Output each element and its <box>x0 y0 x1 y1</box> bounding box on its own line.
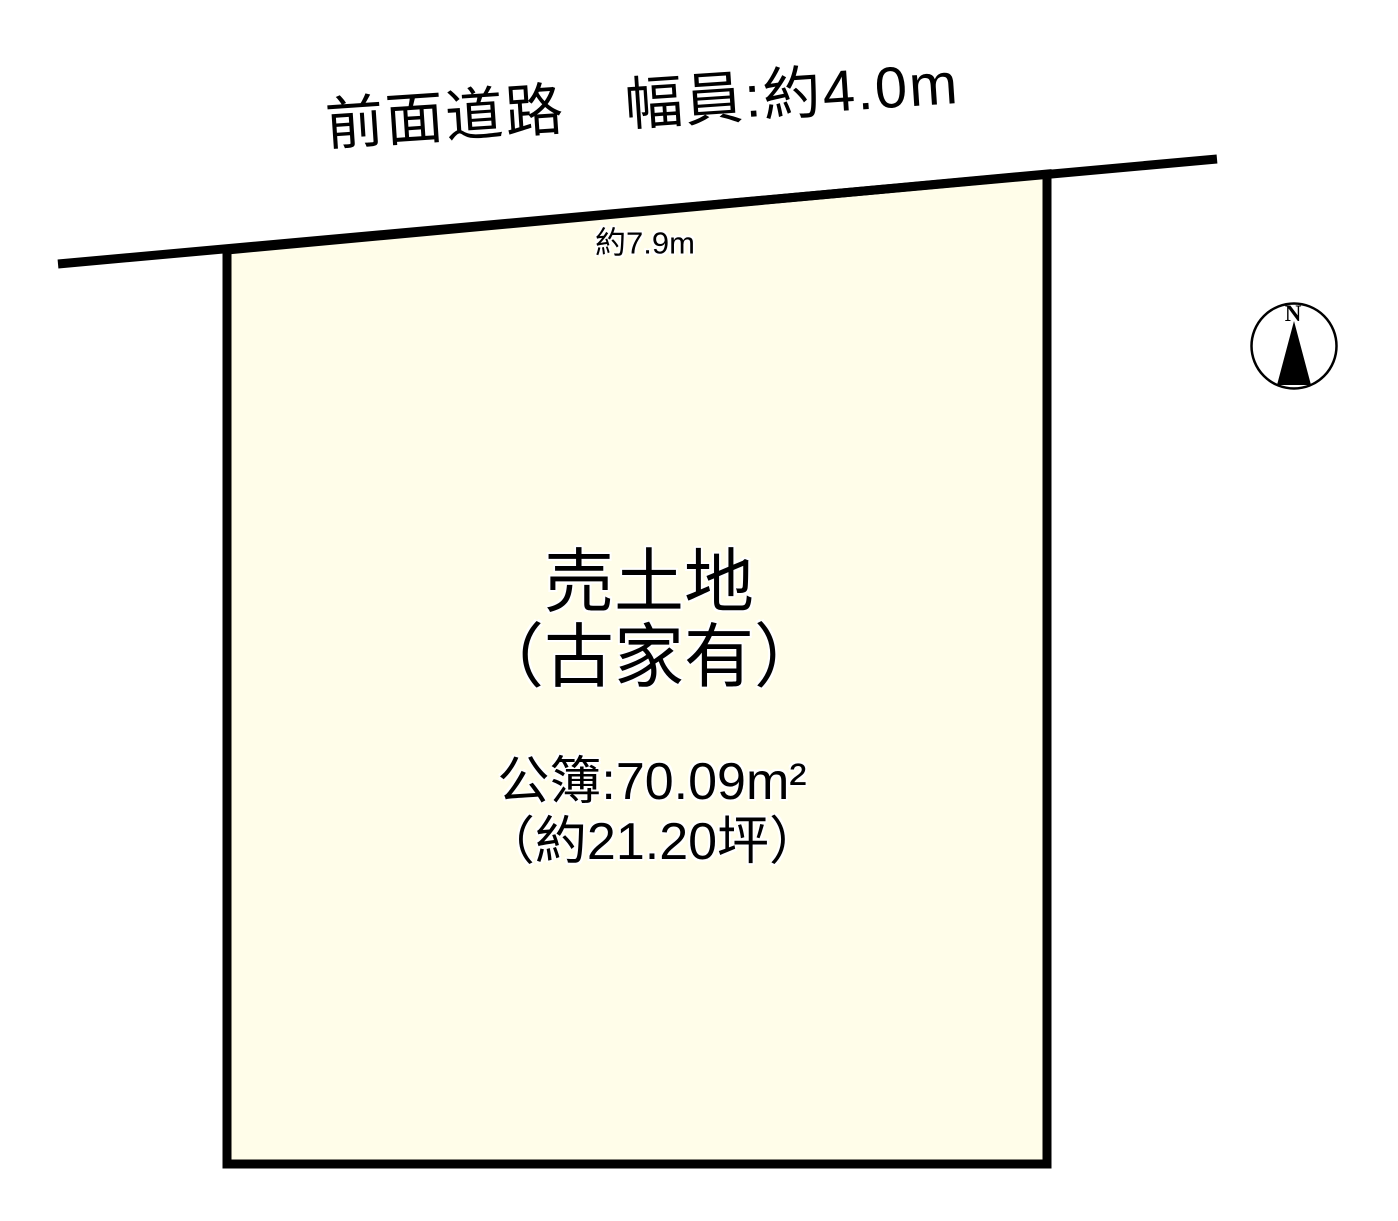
site-plan-canvas: 前面道路 幅員:約4.0m 約7.9m 売土地 （古家有） 公簿:70.09m²… <box>0 0 1398 1221</box>
parcel-area-registered: 公簿:70.09m² <box>483 752 821 812</box>
parcel-title: 売土地 （古家有） <box>474 545 824 695</box>
compass-north-label: N <box>1285 301 1302 327</box>
parcel-title-line2: （古家有） <box>474 620 824 695</box>
parcel-title-line1: 売土地 <box>474 545 824 620</box>
parcel-area: 公簿:70.09m² （約21.20坪） <box>483 752 821 872</box>
parcel-area-tsubo: （約21.20坪） <box>483 812 821 872</box>
frontage-dimension-label: 約7.9m <box>595 218 695 263</box>
